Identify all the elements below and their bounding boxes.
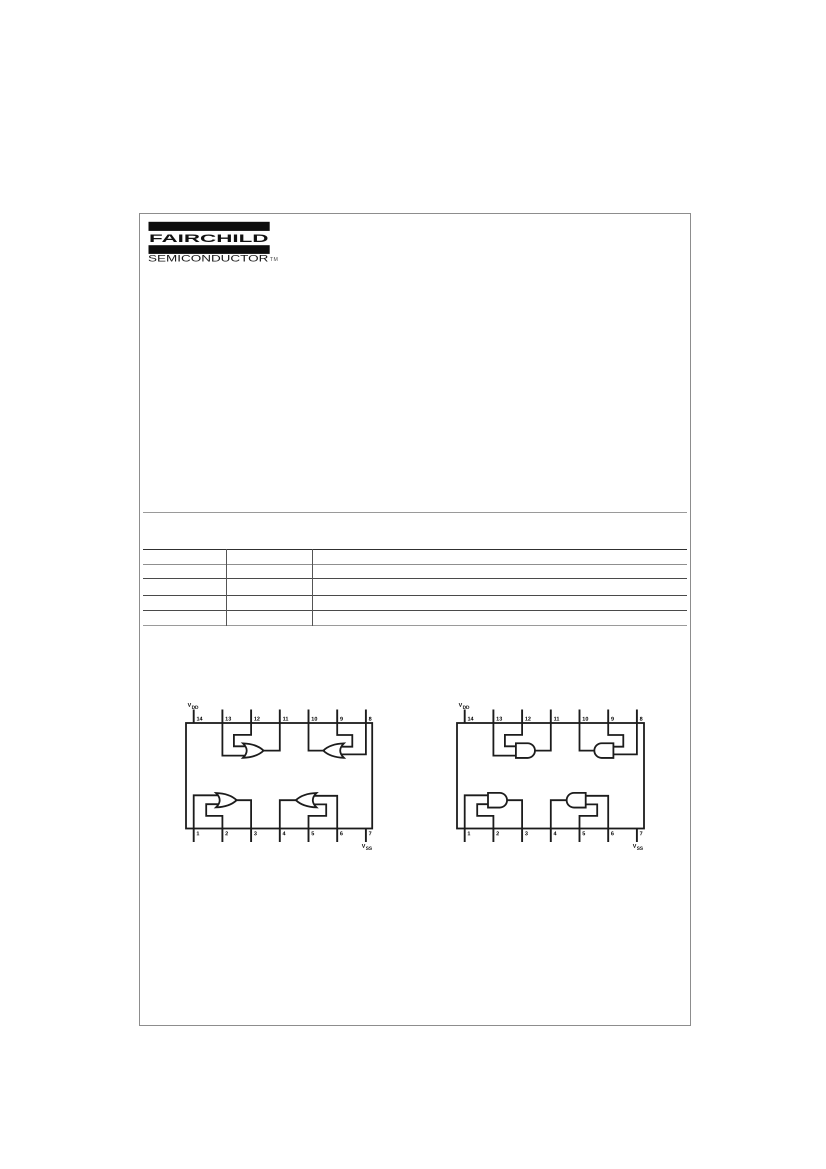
svg-text:1: 1	[196, 831, 199, 837]
svg-text:6: 6	[340, 831, 343, 837]
svg-text:SEMICONDUCTOR: SEMICONDUCTOR	[148, 254, 269, 264]
svg-text:8: 8	[369, 717, 372, 723]
svg-text:9: 9	[611, 717, 614, 723]
svg-text:13: 13	[497, 717, 503, 723]
svg-text:5: 5	[311, 831, 314, 837]
svg-text:3: 3	[254, 831, 257, 837]
svg-text:14: 14	[196, 717, 203, 723]
svg-text:11: 11	[554, 717, 560, 723]
svg-text:4: 4	[283, 831, 287, 837]
svg-text:10: 10	[311, 717, 317, 723]
svg-text:2: 2	[225, 831, 228, 837]
svg-text:11: 11	[283, 717, 289, 723]
svg-text:3: 3	[525, 831, 528, 837]
svg-text:DD: DD	[192, 705, 199, 711]
svg-text:FAIRCHILD: FAIRCHILD	[149, 233, 269, 245]
svg-text:12: 12	[254, 717, 260, 723]
svg-text:13: 13	[225, 717, 231, 723]
svg-text:7: 7	[369, 831, 372, 837]
svg-text:10: 10	[583, 717, 589, 723]
svg-text:DD: DD	[463, 705, 470, 711]
svg-text:TM: TM	[270, 257, 279, 263]
svg-text:2: 2	[497, 831, 500, 837]
svg-text:SS: SS	[637, 846, 644, 852]
svg-text:8: 8	[640, 717, 643, 723]
svg-text:14: 14	[468, 717, 475, 723]
svg-text:4: 4	[554, 831, 558, 837]
svg-text:SS: SS	[366, 846, 373, 852]
svg-text:1: 1	[468, 831, 471, 837]
svg-text:7: 7	[640, 831, 643, 837]
svg-text:5: 5	[583, 831, 586, 837]
svg-text:6: 6	[611, 831, 614, 837]
svg-text:9: 9	[340, 717, 343, 723]
svg-text:12: 12	[525, 717, 531, 723]
